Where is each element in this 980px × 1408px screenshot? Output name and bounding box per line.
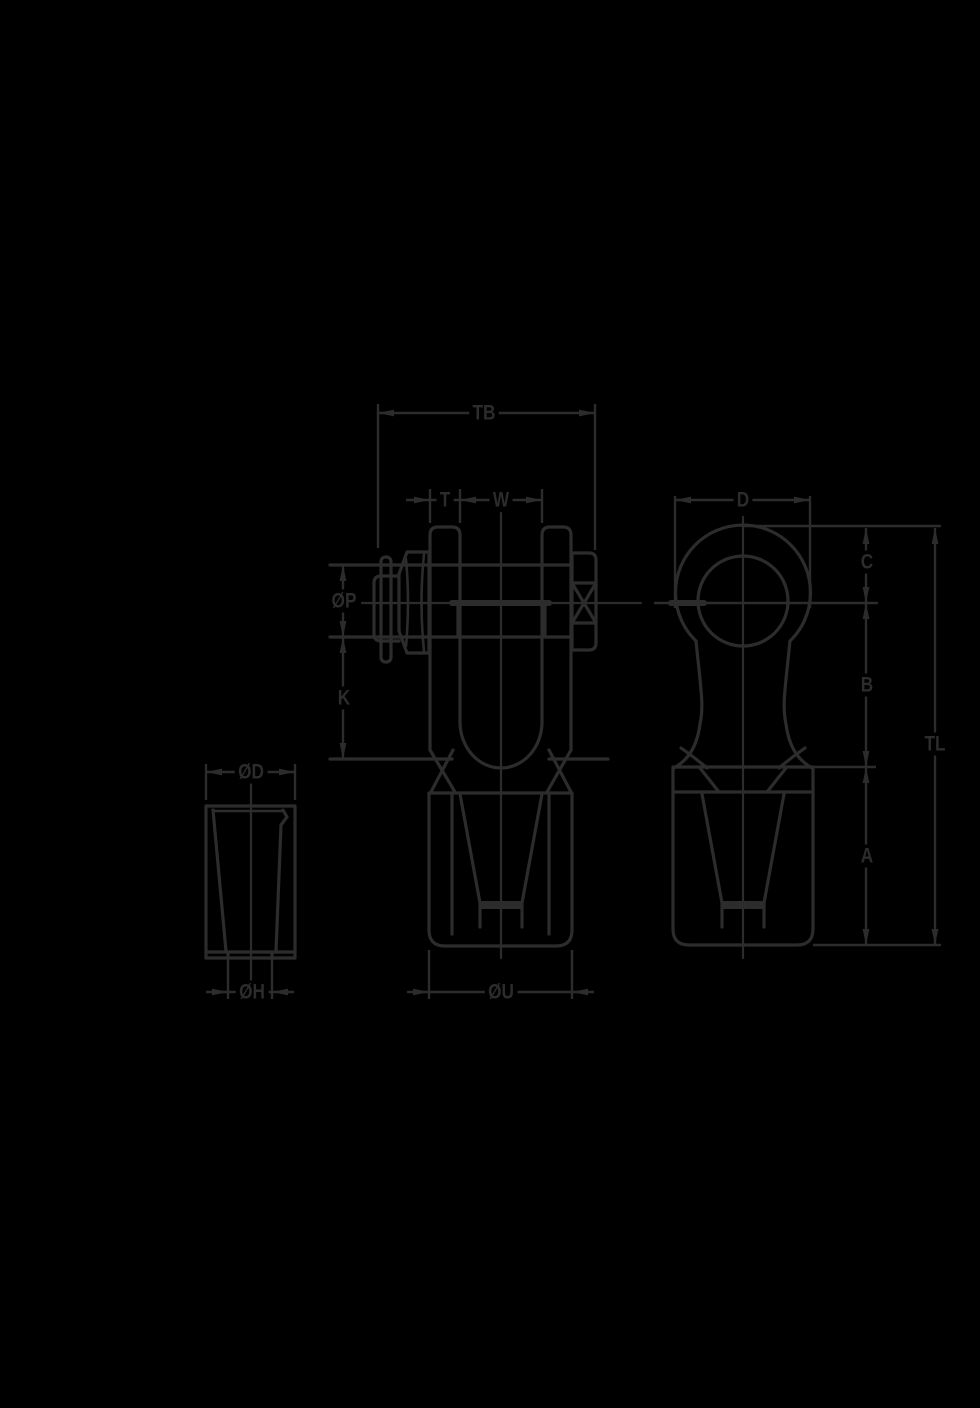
technical-drawing bbox=[0, 0, 980, 1408]
dim-label-d-eye: D bbox=[733, 489, 752, 512]
side-view bbox=[655, 517, 877, 958]
cone-taper-left bbox=[213, 810, 226, 951]
eye-shank-left bbox=[674, 641, 702, 768]
dim-label-h-cone: ØH bbox=[236, 981, 268, 1004]
retainer-cross bbox=[572, 553, 596, 650]
dim-label-tb: TB bbox=[469, 402, 499, 425]
cone-taper-right bbox=[276, 810, 287, 951]
dim-label-k: K bbox=[334, 687, 353, 710]
dim-label-p-dia: ØP bbox=[328, 590, 359, 613]
cotter-pin bbox=[381, 557, 391, 662]
section-view bbox=[206, 782, 295, 985]
dim-t-w bbox=[406, 489, 542, 523]
dim-label-b: B bbox=[857, 674, 876, 697]
dim-label-t: T bbox=[436, 489, 453, 512]
dim-label-tl: TL bbox=[921, 733, 949, 756]
dim-label-u-dia: ØU bbox=[485, 981, 517, 1004]
dim-label-w: W bbox=[490, 489, 513, 512]
fork-socket-transition bbox=[330, 750, 608, 792]
dim-label-a: A bbox=[857, 845, 876, 868]
eye-shank-right bbox=[784, 641, 812, 768]
clevis-pin bbox=[330, 565, 571, 637]
front-view bbox=[330, 513, 641, 958]
drawing-canvas: TB T W ØP K D C B A TL ØD ØH ØU bbox=[0, 0, 980, 1408]
dim-label-d-cone: ØD bbox=[235, 761, 267, 784]
dim-label-c: C bbox=[857, 551, 876, 574]
pin-threaded-end bbox=[374, 576, 399, 641]
